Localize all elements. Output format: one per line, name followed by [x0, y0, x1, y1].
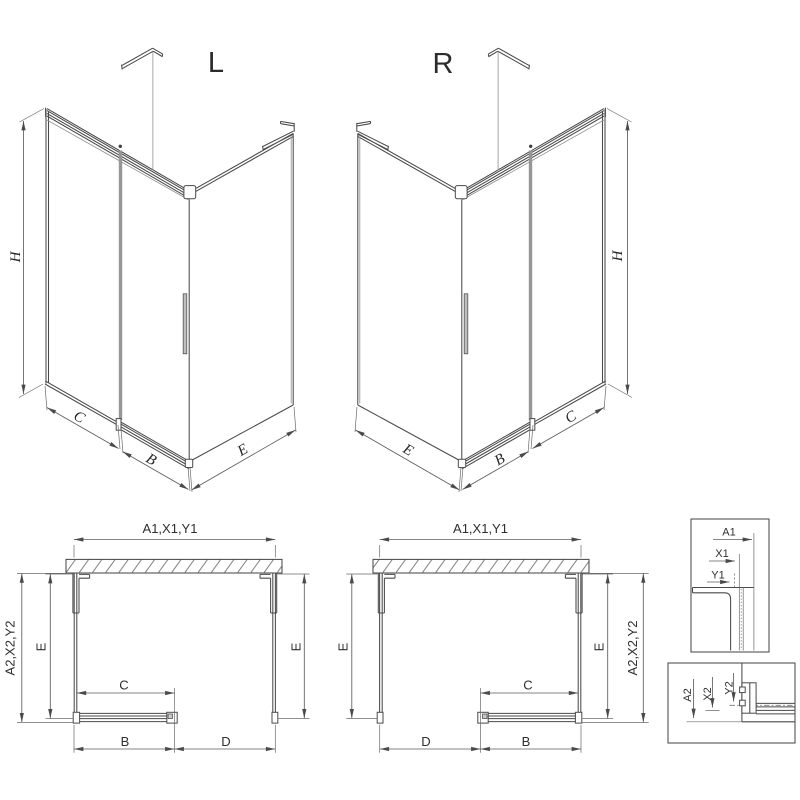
plan-left-e-left: E	[34, 642, 49, 651]
plan-right-top-dim: A1,X1,Y1	[453, 521, 508, 536]
plan-right-d-dim: D	[421, 734, 430, 749]
plan-right-outer-dim: A2,X2,Y2	[625, 621, 640, 676]
variant-label-left: L	[208, 47, 224, 79]
plan-left-top-dim: A1,X1,Y1	[143, 521, 198, 536]
plan-right-c-dim: C	[523, 678, 532, 693]
dim-label-h-right: H	[610, 249, 626, 262]
plan-view-left	[17, 540, 310, 753]
plan-left-b-dim: B	[121, 734, 130, 749]
drawing-page: L R H C B E H E B C A1,X1,Y1 A2,X2,Y2 E …	[0, 0, 800, 800]
detail-y2-label: Y2	[724, 681, 736, 694]
wall-section-right	[373, 559, 589, 573]
iso-view-left	[19, 48, 296, 492]
dim-label-h-left: H	[8, 250, 24, 263]
iso-view-right	[355, 48, 632, 492]
dim-label-b-right: B	[492, 451, 508, 469]
plan-right-e-right: E	[592, 642, 607, 651]
plan-left-outer-dim: A2,X2,Y2	[3, 621, 18, 676]
iso-left-dimensions	[19, 109, 296, 493]
detail-x2-label: X2	[702, 687, 714, 700]
detail-x1-label: X1	[715, 548, 728, 560]
plan-left-c-dim: C	[119, 678, 128, 693]
dim-label-c-left: C	[71, 408, 89, 427]
plan-right-b-dim: B	[522, 734, 531, 749]
variant-label-right: R	[433, 48, 454, 80]
detail-a2-label: A2	[682, 688, 694, 701]
plan-left-e-right: E	[289, 642, 304, 651]
dim-label-c-right: C	[563, 408, 581, 427]
detail-box-bottom-rail	[668, 663, 795, 743]
plan-left-d-dim: D	[221, 734, 230, 749]
detail-box-corner-profile	[691, 519, 769, 652]
plan-right-e-left: E	[336, 642, 351, 651]
iso-right-dimensions	[355, 109, 632, 493]
shower-enclosure-technical-drawing: L R H C B E H E B C A1,X1,Y1 A2,X2,Y2 E …	[0, 0, 800, 800]
detail-y1-label: Y1	[711, 570, 724, 582]
wall-section-left	[66, 559, 282, 573]
dim-label-b-left: B	[143, 451, 159, 469]
detail-a1-label: A1	[722, 527, 735, 539]
